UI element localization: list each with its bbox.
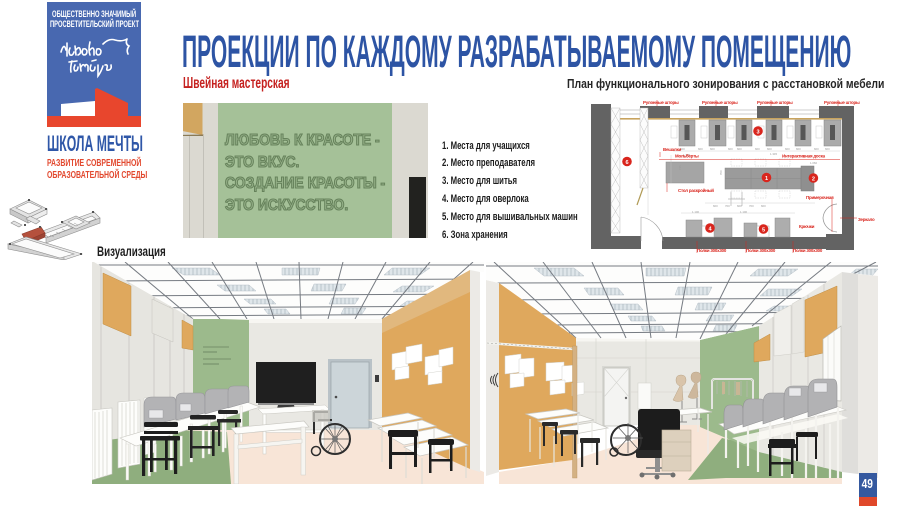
- svg-text:600: 600: [755, 147, 760, 151]
- svg-text:600: 600: [825, 147, 830, 151]
- svg-text:Мольберты: Мольберты: [675, 154, 699, 159]
- svg-text:700: 700: [749, 204, 754, 208]
- svg-text:Вешалки: Вешалки: [663, 147, 682, 152]
- svg-text:600: 600: [728, 147, 733, 151]
- svg-text:Полки 300х300: Полки 300х300: [793, 248, 823, 253]
- svg-text:600: 600: [785, 147, 790, 151]
- svg-text:Полки 300х300: Полки 300х300: [697, 248, 727, 253]
- svg-text:600: 600: [698, 147, 703, 151]
- svg-text:2: 2: [812, 176, 815, 182]
- svg-text:600: 600: [737, 204, 742, 208]
- svg-text:5: 5: [762, 227, 765, 233]
- svg-text:Рулонные шторы: Рулонные шторы: [757, 100, 793, 105]
- svg-text:Полки 300х300: Полки 300х300: [746, 248, 776, 253]
- svg-text:Зеркало: Зеркало: [858, 217, 875, 222]
- svg-text:Рулонные шторы: Рулонные шторы: [702, 100, 738, 105]
- svg-text:Стол раскройный: Стол раскройный: [678, 188, 714, 193]
- svg-text:Рулонные шторы: Рулонные шторы: [824, 100, 860, 105]
- svg-text:Примерочная: Примерочная: [806, 195, 834, 200]
- svg-text:600: 600: [814, 147, 819, 151]
- svg-text:700: 700: [719, 170, 723, 175]
- svg-text:600: 600: [713, 204, 718, 208]
- svg-text:1.345: 1.345: [770, 152, 777, 156]
- svg-text:3: 3: [756, 129, 759, 135]
- svg-text:1.100: 1.100: [740, 210, 747, 214]
- svg-text:700: 700: [725, 204, 730, 208]
- svg-text:Крючки: Крючки: [799, 224, 815, 229]
- svg-text:1.100: 1.100: [692, 210, 699, 214]
- svg-text:Рулонные шторы: Рулонные шторы: [643, 100, 679, 105]
- svg-text:1.060: 1.060: [810, 161, 817, 165]
- svg-text:1: 1: [765, 176, 768, 182]
- svg-text:600: 600: [737, 147, 742, 151]
- svg-text:745: 745: [678, 165, 682, 170]
- svg-text:Интерактивная доска: Интерактивная доска: [782, 154, 826, 159]
- svg-text:600: 600: [761, 204, 766, 208]
- svg-text:600: 600: [710, 147, 715, 151]
- svg-text:600: 600: [796, 147, 801, 151]
- svg-text:6: 6: [625, 160, 628, 166]
- svg-text:600: 600: [767, 147, 772, 151]
